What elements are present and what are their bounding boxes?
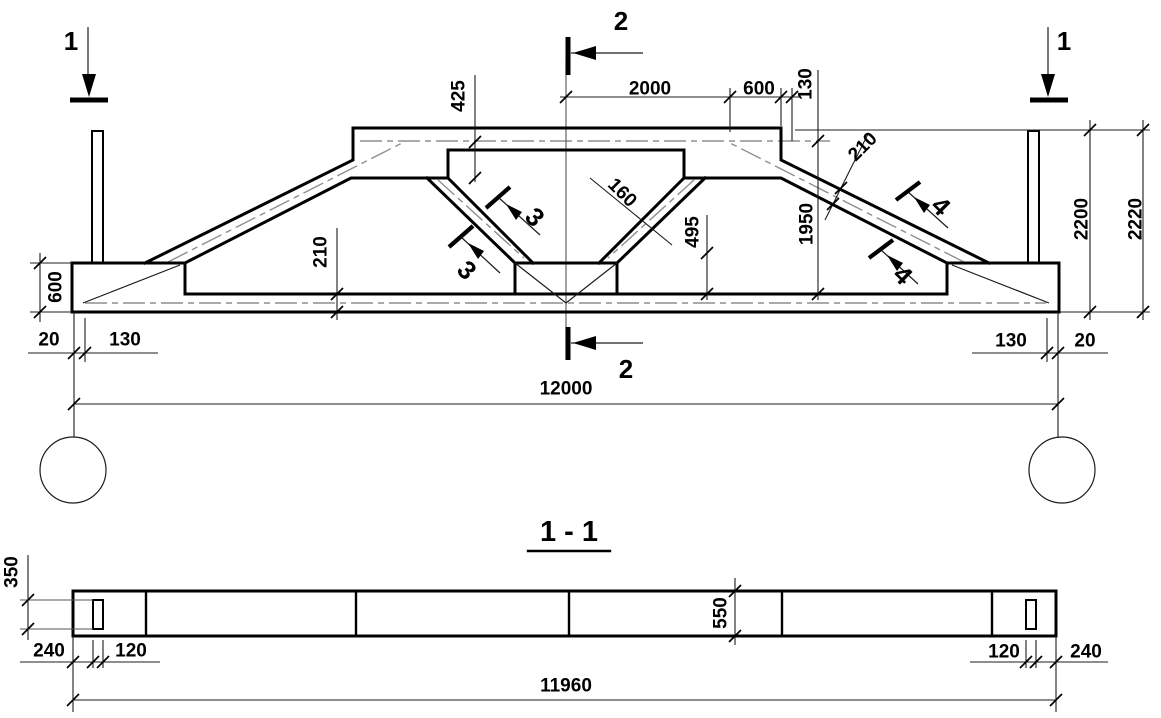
section-division-lines bbox=[146, 591, 992, 636]
section-label-4: 4 bbox=[887, 259, 919, 291]
dim-mid-vertical: 495 bbox=[683, 216, 704, 248]
section-mark-2-top: 2 bbox=[568, 6, 643, 75]
dim-slope-height: 1950 bbox=[797, 203, 818, 245]
left-arrow-icon bbox=[573, 46, 596, 60]
section-label-3: 3 bbox=[451, 254, 482, 285]
dim-span: 12000 bbox=[540, 379, 593, 400]
dim-edge-to-hole-right: 240 bbox=[1070, 642, 1102, 663]
grid-bubbles bbox=[40, 437, 1095, 503]
section-mark-1-left: 1 bbox=[64, 26, 108, 100]
grid-bubble-left bbox=[40, 437, 106, 503]
cut-bar bbox=[869, 240, 893, 258]
section-label-1: 1 bbox=[64, 26, 78, 56]
hole-extension-lines bbox=[20, 600, 93, 629]
dim-right-edge-offset: 20 bbox=[1074, 331, 1095, 352]
dim-depth: 550 bbox=[711, 597, 732, 629]
dim-hole-width-left: 120 bbox=[115, 641, 147, 662]
section-mark-3-lower: 3 bbox=[449, 226, 500, 286]
dim-length: 11960 bbox=[540, 676, 592, 697]
dim-diagonal-thickness: 160 bbox=[603, 174, 640, 211]
section-mark-2-bottom: 2 bbox=[568, 327, 643, 384]
down-arrow-icon bbox=[82, 74, 96, 97]
dim-height-inner: 2200 bbox=[1072, 198, 1093, 240]
dim-height-outer: 2220 bbox=[1126, 198, 1147, 240]
centerlines bbox=[85, 60, 1046, 360]
dim-end-height: 600 bbox=[46, 271, 67, 303]
section-label-4: 4 bbox=[925, 190, 957, 222]
section-cut-marks: 1 1 2 2 bbox=[64, 6, 1071, 384]
section-label-1: 1 bbox=[1057, 26, 1071, 56]
left-arrow-icon bbox=[573, 336, 596, 350]
cut-bar bbox=[896, 182, 920, 200]
left-hole bbox=[93, 600, 103, 629]
dimension-ticks bbox=[34, 91, 1149, 410]
section-view-title: 1 - 1 bbox=[540, 516, 598, 548]
diagonal-arrow-icon bbox=[506, 204, 522, 220]
dim-top-chord-thickness: 210 bbox=[844, 128, 881, 165]
right-post bbox=[1028, 131, 1039, 263]
section-label-2: 2 bbox=[619, 354, 633, 384]
truss-drawing-sheet: 2000 600 130 425 1950 2200 2220 495 160 … bbox=[0, 0, 1161, 718]
section-outline bbox=[73, 591, 1056, 636]
elevation-view: 2000 600 130 425 1950 2200 2220 495 160 … bbox=[28, 6, 1150, 503]
dim-half-top-flat: 2000 bbox=[629, 79, 671, 100]
dim-top-step: 130 bbox=[796, 68, 817, 100]
dim-right-bearing: 130 bbox=[995, 331, 1027, 352]
dim-edge-to-hole-left: 240 bbox=[33, 641, 65, 662]
down-arrow-icon bbox=[1041, 74, 1055, 97]
dim-left-bearing: 130 bbox=[109, 330, 141, 351]
section-mark-4-lower: 4 bbox=[869, 240, 919, 291]
section-mark-1-right: 1 bbox=[1030, 26, 1071, 100]
section-label-2: 2 bbox=[614, 6, 628, 36]
left-post bbox=[92, 131, 103, 263]
dim-bottom-chord-thickness: 210 bbox=[311, 236, 332, 268]
dim-top-chord-offset: 425 bbox=[449, 80, 470, 112]
grid-bubble-right bbox=[1029, 437, 1095, 503]
section-label-3: 3 bbox=[519, 201, 550, 232]
right-hole bbox=[1026, 600, 1036, 629]
section-dimension-labels: 350 550 240 120 120 240 11960 bbox=[2, 556, 1102, 696]
dim-hole-width-right: 120 bbox=[988, 642, 1020, 663]
dim-left-edge-offset: 20 bbox=[38, 330, 59, 351]
section-1-1-view: 1 - 1 350 550 240 120 120 240 11960 bbox=[2, 516, 1109, 712]
dim-flange-height: 350 bbox=[2, 556, 23, 588]
right-slope-centerline bbox=[728, 142, 964, 262]
dim-top-slope-proj: 600 bbox=[743, 79, 775, 100]
left-slope-centerline bbox=[168, 142, 404, 262]
technical-drawing: 2000 600 130 425 1950 2200 2220 495 160 … bbox=[0, 0, 1161, 718]
